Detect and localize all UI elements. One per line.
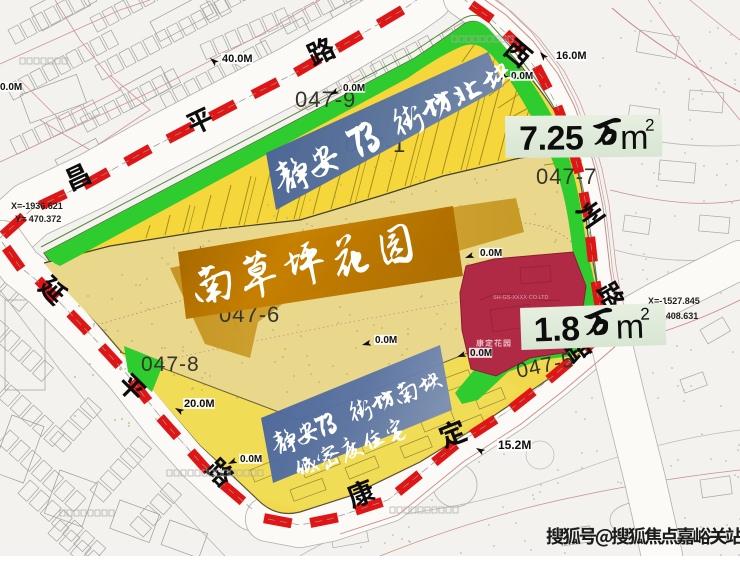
svg-text:0.0M: 0.0M xyxy=(0,82,22,93)
svg-text:0.0M: 0.0M xyxy=(375,335,397,346)
svg-text:20.0M: 20.0M xyxy=(184,398,215,410)
svg-text:2: 2 xyxy=(645,116,655,135)
svg-text:0.0M: 0.0M xyxy=(343,83,365,94)
svg-text:2: 2 xyxy=(640,304,650,323)
svg-text:047-8: 047-8 xyxy=(141,353,200,376)
svg-text:0.0M: 0.0M xyxy=(480,248,502,259)
svg-text:Y= 470.372: Y= 470.372 xyxy=(15,214,61,224)
svg-text:SH-GS-XXXX-CO.LTD: SH-GS-XXXX-CO.LTD xyxy=(493,295,549,301)
svg-text:047-7: 047-7 xyxy=(536,164,597,189)
svg-text:0.0M: 0.0M xyxy=(470,348,492,359)
svg-text:15.2M: 15.2M xyxy=(498,438,531,452)
svg-text:0.0M: 0.0M xyxy=(240,454,262,465)
svg-text:1.8: 1.8 xyxy=(533,310,580,350)
svg-text:X=-1936.621: X=-1936.621 xyxy=(11,201,63,211)
svg-text:16.0M: 16.0M xyxy=(556,50,587,62)
svg-text:7.25: 7.25 xyxy=(519,119,584,158)
svg-text:40.0M: 40.0M xyxy=(222,53,253,65)
